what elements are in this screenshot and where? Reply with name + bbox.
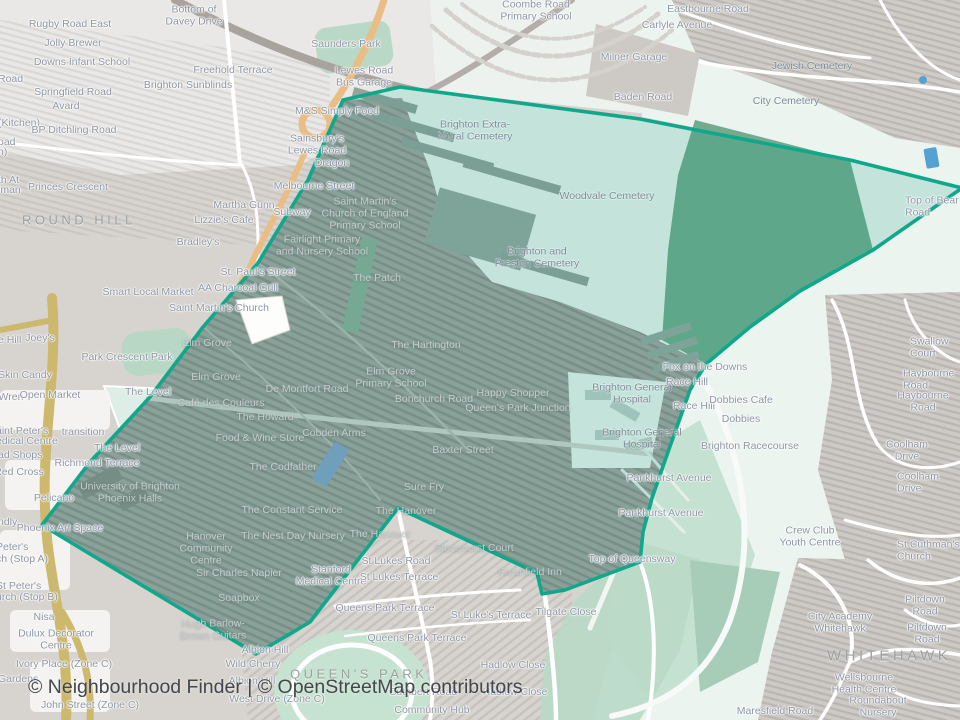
map-label: Brighton and Preston Cemetery: [495, 246, 580, 270]
map-label: ad Shops: [0, 450, 42, 462]
map-label: Queens Park Terrace: [367, 633, 466, 645]
map-label: Jolly Brewer: [44, 38, 101, 50]
map-label: The Hanover: [376, 506, 437, 518]
map-label: The Hartington: [391, 340, 460, 352]
map-label: Coolham Drive: [881, 439, 934, 463]
map-label: Soapbox: [218, 593, 259, 605]
map-labels-layer: Rugby Road EastJolly BrewerDowns Infant …: [0, 0, 960, 720]
map-label: St Lukes Road: [362, 556, 431, 568]
map-label: Coombe Road Primary School: [500, 0, 571, 23]
map-label: Top of Queensway: [589, 554, 676, 566]
map-label: The Nest Day Nursery: [241, 531, 345, 543]
map-label: The Hanover: [350, 529, 411, 541]
map-label: Dulux Decorator Centre: [18, 628, 94, 652]
map-label: Roundabout Nursery: [837, 695, 919, 719]
map-label: Haybourne Road: [897, 390, 948, 414]
map-label: The Level: [125, 387, 171, 399]
map-label: Brighton General Hospital: [602, 427, 681, 451]
map-label: Subway: [273, 207, 310, 219]
map-label: Hanover Community Centre: [179, 531, 232, 566]
map-label: St Luke's Terrace: [451, 610, 532, 622]
map-label: Albion Hill: [242, 645, 289, 657]
map-label: Brighton General Hospital: [592, 382, 671, 406]
map-label: St Peter's: [0, 581, 41, 593]
map-label: Freehold Terrace: [193, 65, 272, 77]
map-label: Smart Local Market: [102, 287, 193, 299]
map-label: e Hill: [0, 335, 21, 347]
map-label: City Cemetery: [753, 96, 820, 108]
map-label: Lewes Road Bus Garage: [335, 65, 393, 89]
map-label: Fox on the Downs: [663, 362, 748, 374]
map-label: Richmond Terrace: [54, 458, 139, 470]
map-label: Pankhurst Avenue: [618, 508, 703, 520]
map-label: Elm Grove Primary School: [355, 366, 426, 390]
map-label: Piltdown Road: [907, 622, 947, 646]
map-label: Queens Park Terrace: [335, 603, 434, 615]
map-label: Rugby Road East: [29, 19, 111, 31]
map-label: (Kitchen): [0, 118, 40, 130]
map-label: Wellsbourne Health Centre: [832, 672, 897, 696]
map-label: Community Hub: [394, 705, 469, 717]
map-label: Joey's: [25, 333, 54, 345]
map-label: aint Peter's: [0, 426, 48, 438]
map-label: Peter's: [0, 542, 28, 554]
map-label: Wren: [0, 392, 23, 404]
map-label: Sir Charles Napier: [196, 568, 282, 580]
map-label: The Patch: [353, 273, 401, 285]
map-label: Nisa: [33, 612, 54, 624]
map-label: John Street (Zone C): [41, 700, 139, 712]
map-label: Bonchurch Road: [395, 394, 473, 406]
map-label: Woodvale Cemetery: [560, 191, 655, 203]
map-label: Milner Garage: [601, 52, 668, 64]
map-label: oad: [0, 137, 16, 149]
map-label: Dobbies: [722, 414, 761, 426]
map-label: Coolham Drive: [897, 471, 960, 495]
map-label: Jewish Cemetery: [772, 61, 853, 73]
map-label: The Codfather: [249, 462, 316, 474]
map-label: Stonehurst Court: [434, 543, 513, 555]
map-label: Brighton Extra- Mural Cemetery: [438, 119, 513, 143]
map-label: BP Ditchling Road: [31, 125, 116, 137]
map-label: St. Paul's Street: [221, 267, 296, 279]
map-label: Sure Fry: [404, 482, 444, 494]
map-label: Pelicano: [34, 493, 74, 505]
map-label: urch (Stop B): [0, 592, 58, 604]
district-name-label: ROUND HILL: [22, 214, 136, 229]
map-label: Ivory Place (Zone C): [16, 659, 112, 671]
map-label: Queen's Park Junction: [465, 403, 570, 415]
map-label: Martha Gunn: [213, 200, 274, 212]
map-label: The Level: [94, 443, 140, 455]
map-label: n): [0, 147, 7, 159]
map-label: Carlyle Avenue: [642, 20, 712, 32]
map-label: Hugh Barlow- Brown Guitars: [180, 618, 247, 642]
map-label: Elm Grove: [191, 372, 241, 384]
map-label: AA Charcoal Grill: [198, 283, 278, 295]
map-label: Road: [0, 74, 23, 86]
district-name-label: WHITEHAWK: [827, 649, 951, 666]
map-label: ndly: [0, 517, 17, 529]
map-label: Saint Martin's Church: [169, 303, 269, 315]
map-label: City Academy Whitehawk: [808, 611, 872, 635]
map-label: Avard: [52, 101, 79, 113]
map-label: Café des Couleurs: [178, 398, 265, 410]
map-label: Freshfield Inn: [498, 567, 562, 579]
map-label: Swallow Court: [910, 336, 960, 360]
map-label: Dobbies Cafe: [709, 395, 773, 407]
map-viewport[interactable]: Rugby Road EastJolly BrewerDowns Infant …: [0, 0, 960, 720]
map-label: Red Cross: [0, 467, 44, 479]
map-label: St Cuthman's Church: [897, 539, 960, 563]
map-label: Eastbourne Road: [667, 4, 749, 16]
map-label: Happy Shopper: [477, 388, 550, 400]
map-label: Open Market: [20, 390, 81, 402]
map-label: Maresfield Road: [737, 706, 813, 718]
map-label: Food & Wine Store: [216, 433, 305, 445]
map-label: Piltdown Road: [905, 594, 945, 618]
map-label: Elm Grove: [182, 338, 232, 350]
map-label: Sainsbury's Lewes Road: [288, 133, 346, 157]
map-label: Springfield Road: [34, 87, 112, 99]
map-label: lman: [0, 185, 21, 197]
map-label: Lizzie's Cafe: [194, 215, 253, 227]
map-label: De Montfort Road: [266, 384, 349, 396]
map-label: Haybourne Road: [903, 368, 960, 392]
map-label: Bradley's: [177, 237, 220, 249]
map-label: ch (Stop A): [0, 554, 48, 566]
map-label: Brighton Sunblinds: [144, 80, 232, 92]
map-label: M&S Simply Food: [295, 106, 379, 118]
map-label: Princes Crescent: [28, 182, 108, 194]
map-label: Saint Martin's Church of England Primary…: [322, 196, 409, 231]
map-label: Melbourne Street: [274, 181, 355, 193]
attribution-text[interactable]: © Neighbourhood Finder | © OpenStreetMap…: [28, 676, 522, 699]
map-label: Cobden Arms: [302, 428, 366, 440]
map-label: th At: [0, 175, 19, 187]
map-label: Hadlow Close: [481, 660, 546, 672]
map-label: Brighton Racecourse: [701, 441, 799, 453]
map-label: Park Crescent Park: [81, 352, 172, 364]
map-label: Wild Cherry: [226, 659, 281, 671]
map-label: Pankhurst Avenue: [626, 473, 711, 485]
map-label: Top of Bear Road: [905, 195, 960, 219]
map-label: University of Brighton Phoenix Halls: [80, 481, 180, 505]
map-label: Crew Club Youth Centre: [780, 525, 841, 549]
map-label: The Howard: [236, 412, 293, 424]
map-label: Baxter Street: [432, 445, 493, 457]
map-label: Stanford Medical Centre: [296, 564, 367, 588]
map-label: Dragon: [315, 158, 349, 170]
map-label: Race Hill: [673, 401, 715, 413]
map-label: Skin Candy: [0, 370, 52, 382]
map-label: St Lukes Terrace: [360, 572, 439, 584]
map-label: Downs Infant School: [34, 57, 130, 69]
map-label: Fairlight Primary and Nursery School: [276, 234, 368, 258]
map-label: The Constant Service: [242, 505, 343, 517]
map-label: edical Centre: [0, 436, 58, 448]
map-label: Tilgate Close: [536, 607, 597, 619]
map-label: Bottom of Davey Drive: [165, 4, 222, 28]
map-label: transition: [62, 427, 105, 439]
map-label: Baden Road: [614, 92, 672, 104]
map-label: Saunders Park: [311, 39, 380, 51]
map-label: Phoenix Art Space: [17, 523, 103, 535]
map-label: Race Hill: [666, 377, 708, 389]
